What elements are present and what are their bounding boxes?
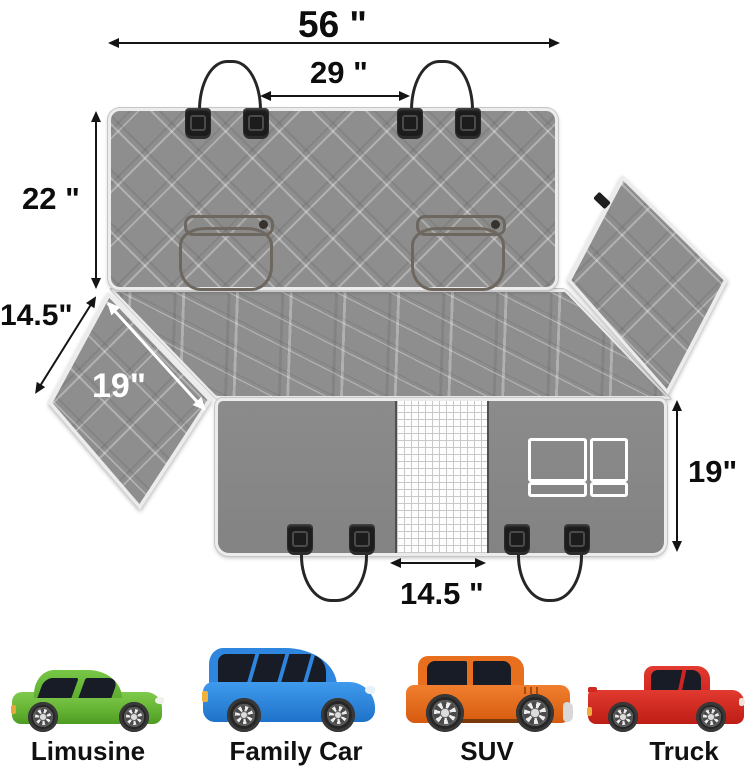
car-wheel (696, 702, 726, 732)
vehicle-label-family-car: Family Car (230, 736, 363, 767)
belt-opening-right-slot (416, 215, 506, 236)
arrow-backrest-height (95, 113, 97, 287)
car-headlight (739, 698, 745, 706)
right-flap-fabric (571, 181, 723, 389)
hood-vents (524, 687, 540, 694)
seat-anchor-strap-right (517, 553, 583, 602)
vehicle-label-truck: Truck (649, 736, 718, 767)
label-mesh-width: 14.5 " (400, 578, 484, 609)
belt-opening-left-slot (184, 215, 274, 236)
wheel-hub (233, 704, 255, 726)
headrest-buckle-1 (185, 108, 211, 139)
product-diagram: 56 " 29 " 22 " 14.5" 19" 19" 14.5 " Limu… (0, 0, 750, 774)
headrest-strap-right (410, 60, 474, 113)
vehicle-label-suv: SUV (460, 736, 513, 767)
wheel-hub (327, 704, 349, 726)
wheel-hub (701, 707, 721, 727)
wheel-hub (432, 700, 457, 725)
arrow-strap-gap (262, 95, 408, 97)
car-wheel (426, 694, 464, 732)
front-bumper (563, 702, 573, 722)
label-strap-gap: 29 " (310, 57, 368, 88)
pickup-truck-icon (588, 655, 744, 732)
arrow-mesh-width (392, 562, 484, 564)
car-wheel (227, 698, 261, 732)
suv-car-icon (406, 649, 570, 732)
pocket-outline-large (528, 438, 587, 482)
arrow-front-height (676, 402, 678, 550)
sedan-car-icon (12, 650, 164, 732)
label-top-width: 56 " (298, 6, 367, 43)
headrest-strap-left (198, 60, 262, 113)
car-window (651, 670, 701, 692)
car-wheel (321, 698, 355, 732)
headrest-buckle-4 (455, 108, 481, 139)
car-wheel (119, 702, 149, 732)
mesh-window (395, 401, 489, 553)
wheel-hub (33, 707, 53, 727)
car-wheel (608, 702, 638, 732)
pocket-flap-small (590, 482, 628, 497)
wheel-hub (522, 700, 547, 725)
car-headlight (365, 686, 375, 694)
seat-anchor-buckle-4 (564, 524, 590, 555)
vehicle-label-limousine: Limusine (31, 736, 145, 767)
car-wheel (516, 694, 554, 732)
pocket-flap-large (528, 482, 587, 497)
label-front-height: 19" (688, 456, 737, 487)
seat-anchor-buckle-1 (287, 524, 313, 555)
seat-anchor-buckle-2 (349, 524, 375, 555)
car-window (473, 661, 511, 687)
pocket-outline-small (590, 438, 628, 482)
wheel-hub (613, 707, 633, 727)
right-side-flap (567, 175, 728, 395)
label-side-flap-diagonal: 19" (92, 369, 146, 403)
minivan-car-icon (203, 641, 375, 732)
car-marker-light (202, 691, 208, 702)
belt-opening-right-loop (411, 227, 505, 291)
headrest-buckle-2 (243, 108, 269, 139)
seat-anchor-buckle-3 (504, 524, 530, 555)
car-window (427, 661, 467, 687)
headrest-buckle-3 (397, 108, 423, 139)
wheel-hub (124, 707, 144, 727)
front-panel (215, 398, 667, 556)
belt-opening-left-loop (179, 227, 273, 291)
car-window (78, 678, 118, 698)
car-window (37, 678, 78, 698)
car-marker-light (11, 705, 16, 714)
car-headlight (155, 697, 164, 704)
car-cabin (34, 670, 122, 698)
car-marker-light (587, 707, 592, 716)
bed-wall (588, 687, 597, 692)
car-wheel (28, 702, 58, 732)
seat-anchor-strap-left (300, 553, 368, 602)
label-backrest-height: 22 " (22, 183, 80, 214)
label-side-flap-edge: 14.5" (0, 301, 73, 331)
